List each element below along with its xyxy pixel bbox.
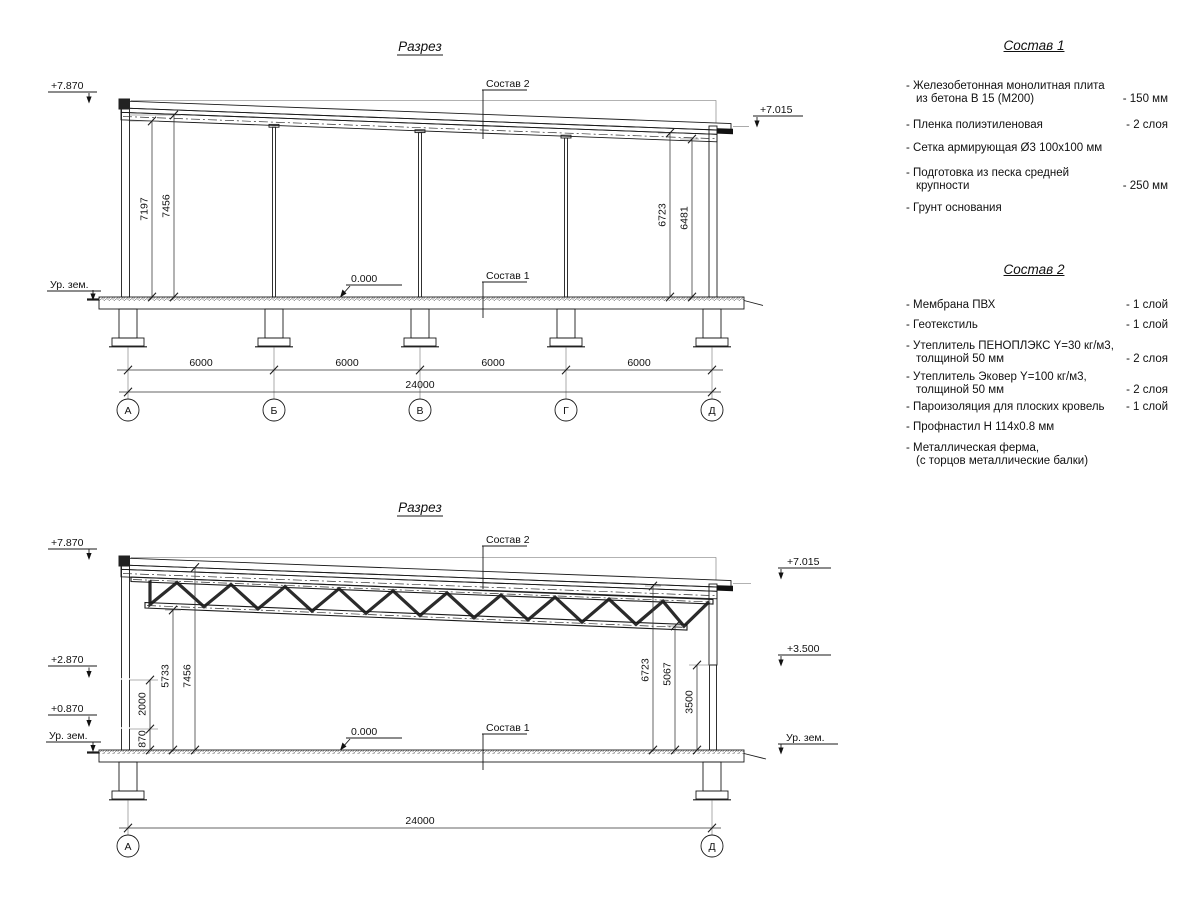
height-dim: 5733 — [160, 664, 172, 688]
drawing-title-bottom: Разрез — [398, 500, 442, 515]
axis-label: Д — [708, 841, 715, 853]
elevation: +7.870 — [51, 537, 84, 549]
parapet — [119, 556, 131, 567]
material-item: - Геотекстиль - 1 слой — [906, 319, 1168, 332]
sostav2-reference: Состав 2 — [486, 534, 530, 546]
height-dim: 5067 — [662, 662, 674, 686]
elevation-left: +7.870 — [51, 80, 84, 92]
height-dim: 2000 — [137, 692, 149, 716]
material-item: - Утеплитель ПЕНОПЛЭКС Y=30 кг/м3, толщи… — [906, 340, 1168, 366]
zero-level-label: 0.000 — [351, 726, 377, 738]
material-item: - Пленка полиэтиленовая - 2 слоя — [906, 119, 1168, 132]
elevation-right: +7.015 — [760, 104, 793, 116]
height-dim: 6723 — [640, 658, 652, 682]
foundations — [109, 762, 731, 800]
elevation: +2.870 — [51, 654, 84, 666]
right-wall-upper — [709, 584, 717, 665]
material-value: - 2 слоя — [1120, 119, 1168, 132]
bottom-section: 24000 А Д 2000 870 5733 7456 — [46, 500, 838, 857]
material-value: - 1 слой — [1120, 319, 1168, 332]
axis-label: В — [416, 405, 423, 417]
sostav1-title: Состав 1 — [900, 38, 1168, 53]
horizontal-dimensions: 24000 — [119, 800, 721, 835]
height-dim: 7456 — [161, 194, 173, 218]
truss-bottom-chord — [145, 603, 687, 631]
right-wall — [709, 126, 717, 297]
material-name: - Утеплитель ПЕНОПЛЭКС Y=30 кг/м3, толщи… — [906, 340, 1114, 366]
left-wall — [122, 560, 130, 750]
sostav2-reference: Состав 2 — [486, 78, 530, 90]
total-dim: 24000 — [405, 379, 434, 391]
floor-slab — [87, 750, 766, 762]
material-name: - Мембрана ПВХ — [906, 299, 995, 312]
material-name: - Сетка армирующая Ø3 100х100 мм — [906, 142, 1102, 155]
span-dim: 6000 — [481, 357, 505, 369]
height-dim: 7456 — [182, 664, 194, 688]
material-item: - Мембрана ПВХ - 1 слой — [906, 299, 1168, 312]
sostav1-reference: Состав 1 — [486, 270, 530, 282]
right-wall-lower — [710, 665, 717, 750]
left-wall — [122, 103, 130, 297]
elevation-marks: +7.870 Ур. зем. +7.015 — [47, 80, 803, 301]
material-item: - Сетка армирующая Ø3 100х100 мм — [906, 142, 1168, 155]
height-dim: 7197 — [139, 197, 151, 221]
material-value: - 250 мм — [1117, 180, 1168, 193]
material-name: - Профнастил Н 114х0.8 мм — [906, 421, 1054, 434]
span-dim: 6000 — [189, 357, 213, 369]
ground-level-label: Ур. зем. — [49, 730, 88, 742]
elevation-marks-right: +7.015 +3.500 Ур. зем. — [733, 556, 838, 755]
axis-bubbles: А Д — [117, 835, 723, 857]
material-value: - 1 слой — [1120, 401, 1168, 414]
material-value: - 2 слоя — [1120, 384, 1168, 397]
roof — [119, 99, 734, 142]
axis-label: А — [124, 405, 131, 417]
floor-slab — [87, 297, 763, 309]
material-name: - Утеплитель Эковер Y=100 кг/м3, толщино… — [906, 371, 1087, 397]
drawing-title-top: Разрез — [398, 39, 442, 54]
material-value: - 1 слой — [1120, 299, 1168, 312]
material-item: - Пароизоляция для плоских кровель - 1 с… — [906, 401, 1168, 414]
material-name: - Пленка полиэтиленовая — [906, 119, 1043, 132]
material-item: - Металлическая ферма, (с торцов металли… — [906, 442, 1168, 468]
steel-truss — [131, 577, 713, 630]
roof — [119, 556, 734, 599]
material-name: - Грунт основания — [906, 202, 1002, 215]
material-item: - Подготовка из песка средней крупности … — [906, 167, 1168, 193]
sostav1-reference: Состав 1 — [486, 722, 530, 734]
span-dim: 6000 — [627, 357, 651, 369]
height-dim: 3500 — [684, 690, 696, 714]
material-name: - Подготовка из песка средней крупности — [906, 167, 1069, 193]
elevation: +7.015 — [787, 556, 820, 568]
parapet — [119, 99, 131, 110]
axis-label: А — [124, 841, 131, 853]
material-name: - Пароизоляция для плоских кровель — [906, 401, 1105, 414]
material-item: - Железобетонная монолитная плита из бет… — [906, 80, 1168, 106]
material-name: - Железобетонная монолитная плита из бет… — [906, 80, 1105, 106]
material-item: - Грунт основания — [906, 202, 1168, 215]
zero-level-label: 0.000 — [351, 273, 377, 285]
material-name: - Металлическая ферма, (с торцов металли… — [906, 442, 1088, 468]
material-value: - 150 мм — [1117, 93, 1168, 106]
horizontal-dimensions: 6000 6000 6000 6000 24000 — [117, 347, 723, 399]
material-name: - Геотекстиль — [906, 319, 981, 332]
material-item: - Утеплитель Эковер Y=100 кг/м3, толщино… — [906, 371, 1168, 397]
materials-panel: Состав 1 - Железобетонная монолитная пли… — [900, 0, 1168, 900]
height-dim: 870 — [137, 730, 149, 748]
height-dim: 6481 — [679, 206, 691, 230]
foundations — [109, 309, 731, 347]
axis-bubbles: А Б В Г Д — [117, 399, 723, 421]
sostav2-title: Состав 2 — [900, 262, 1168, 277]
ground-level-label: Ур. зем. — [50, 279, 89, 291]
leaders: Состав 2 Состав 1 0.000 — [340, 78, 530, 318]
elevation: +3.500 — [787, 643, 820, 655]
height-dim: 6723 — [657, 203, 669, 227]
total-dim: 24000 — [405, 815, 434, 827]
axis-label: Д — [708, 405, 715, 417]
material-item: - Профнастил Н 114х0.8 мм — [906, 421, 1168, 434]
material-value: - 2 слоя — [1120, 353, 1168, 366]
axis-label: Г — [563, 405, 569, 417]
drawing-sheet: 6000 6000 6000 6000 24000 А Б В Г Д 7197… — [0, 0, 1200, 900]
vertical-dimensions: 7197 7456 6723 6481 — [130, 111, 699, 301]
span-dim: 6000 — [335, 357, 359, 369]
roof-end-plate — [717, 585, 733, 591]
elevation: +0.870 — [51, 703, 84, 715]
vertical-dimensions-right: 6723 5067 3500 — [640, 582, 711, 754]
roof-end-plate — [717, 128, 733, 134]
ground-level-label: Ур. зем. — [786, 732, 825, 744]
elevation-marks-left: +7.870 +2.870 +0.870 Ур. зем. — [46, 537, 101, 752]
top-section: 6000 6000 6000 6000 24000 А Б В Г Д 7197… — [47, 39, 803, 421]
axis-label: Б — [271, 405, 278, 417]
